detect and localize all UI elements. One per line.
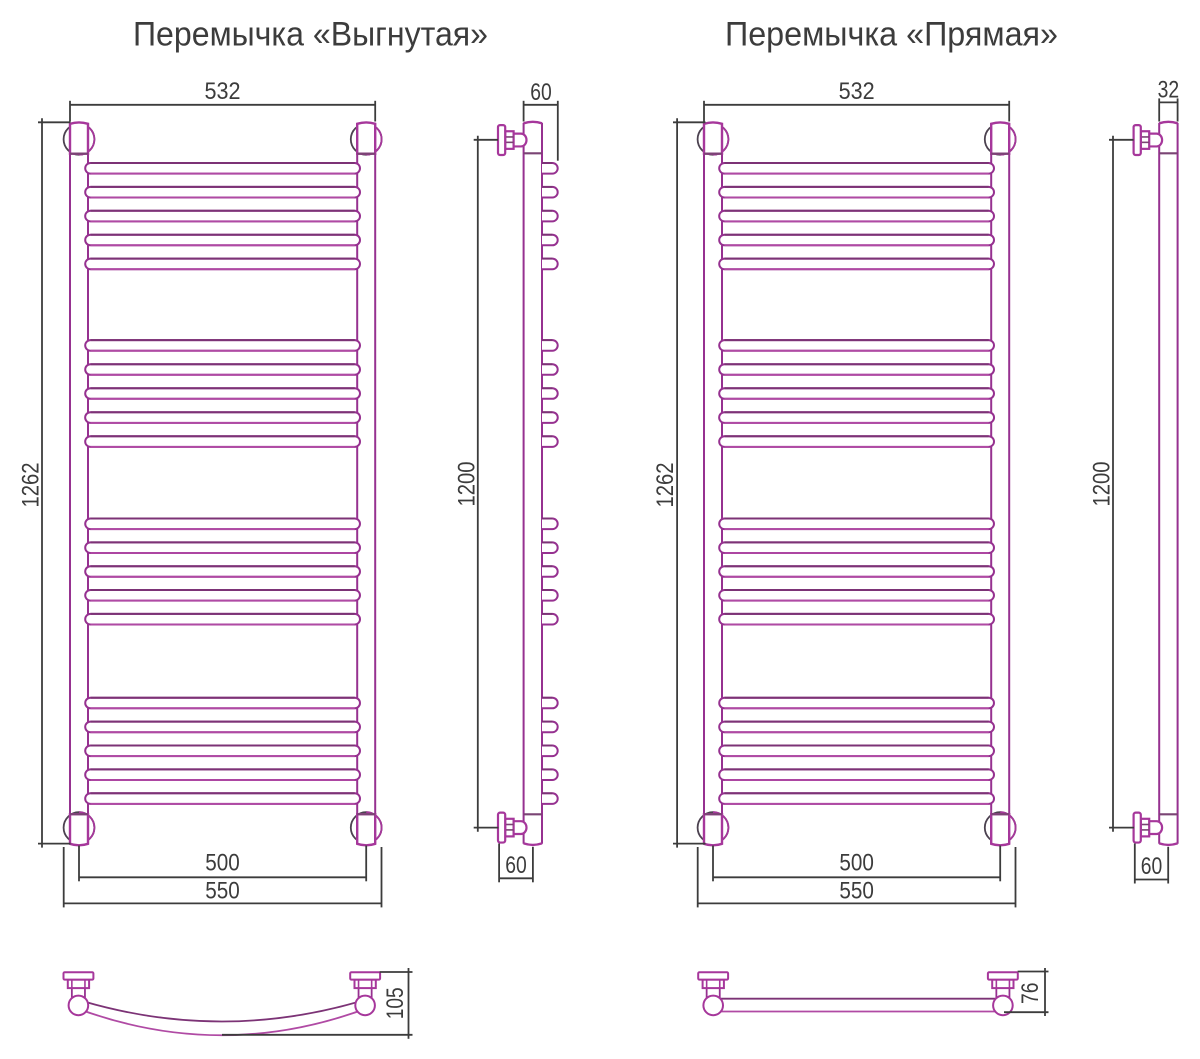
svg-text:1262: 1262 xyxy=(17,463,44,508)
svg-text:1200: 1200 xyxy=(1089,462,1116,507)
svg-text:105: 105 xyxy=(382,987,409,1019)
svg-text:Перемычка «Прямая»: Перемычка «Прямая» xyxy=(725,16,1058,54)
svg-text:532: 532 xyxy=(839,78,875,105)
svg-text:1262: 1262 xyxy=(652,463,679,508)
svg-text:60: 60 xyxy=(530,79,552,106)
svg-text:76: 76 xyxy=(1017,983,1044,1005)
svg-text:60: 60 xyxy=(1141,853,1163,880)
svg-text:Перемычка «Выгнутая»: Перемычка «Выгнутая» xyxy=(133,16,488,54)
svg-text:1200: 1200 xyxy=(453,462,480,507)
svg-text:32: 32 xyxy=(1158,77,1180,104)
svg-text:500: 500 xyxy=(205,850,240,877)
svg-text:60: 60 xyxy=(505,852,527,879)
svg-text:550: 550 xyxy=(839,877,874,904)
svg-text:500: 500 xyxy=(839,850,874,877)
svg-text:532: 532 xyxy=(205,78,241,105)
svg-text:550: 550 xyxy=(205,877,240,904)
